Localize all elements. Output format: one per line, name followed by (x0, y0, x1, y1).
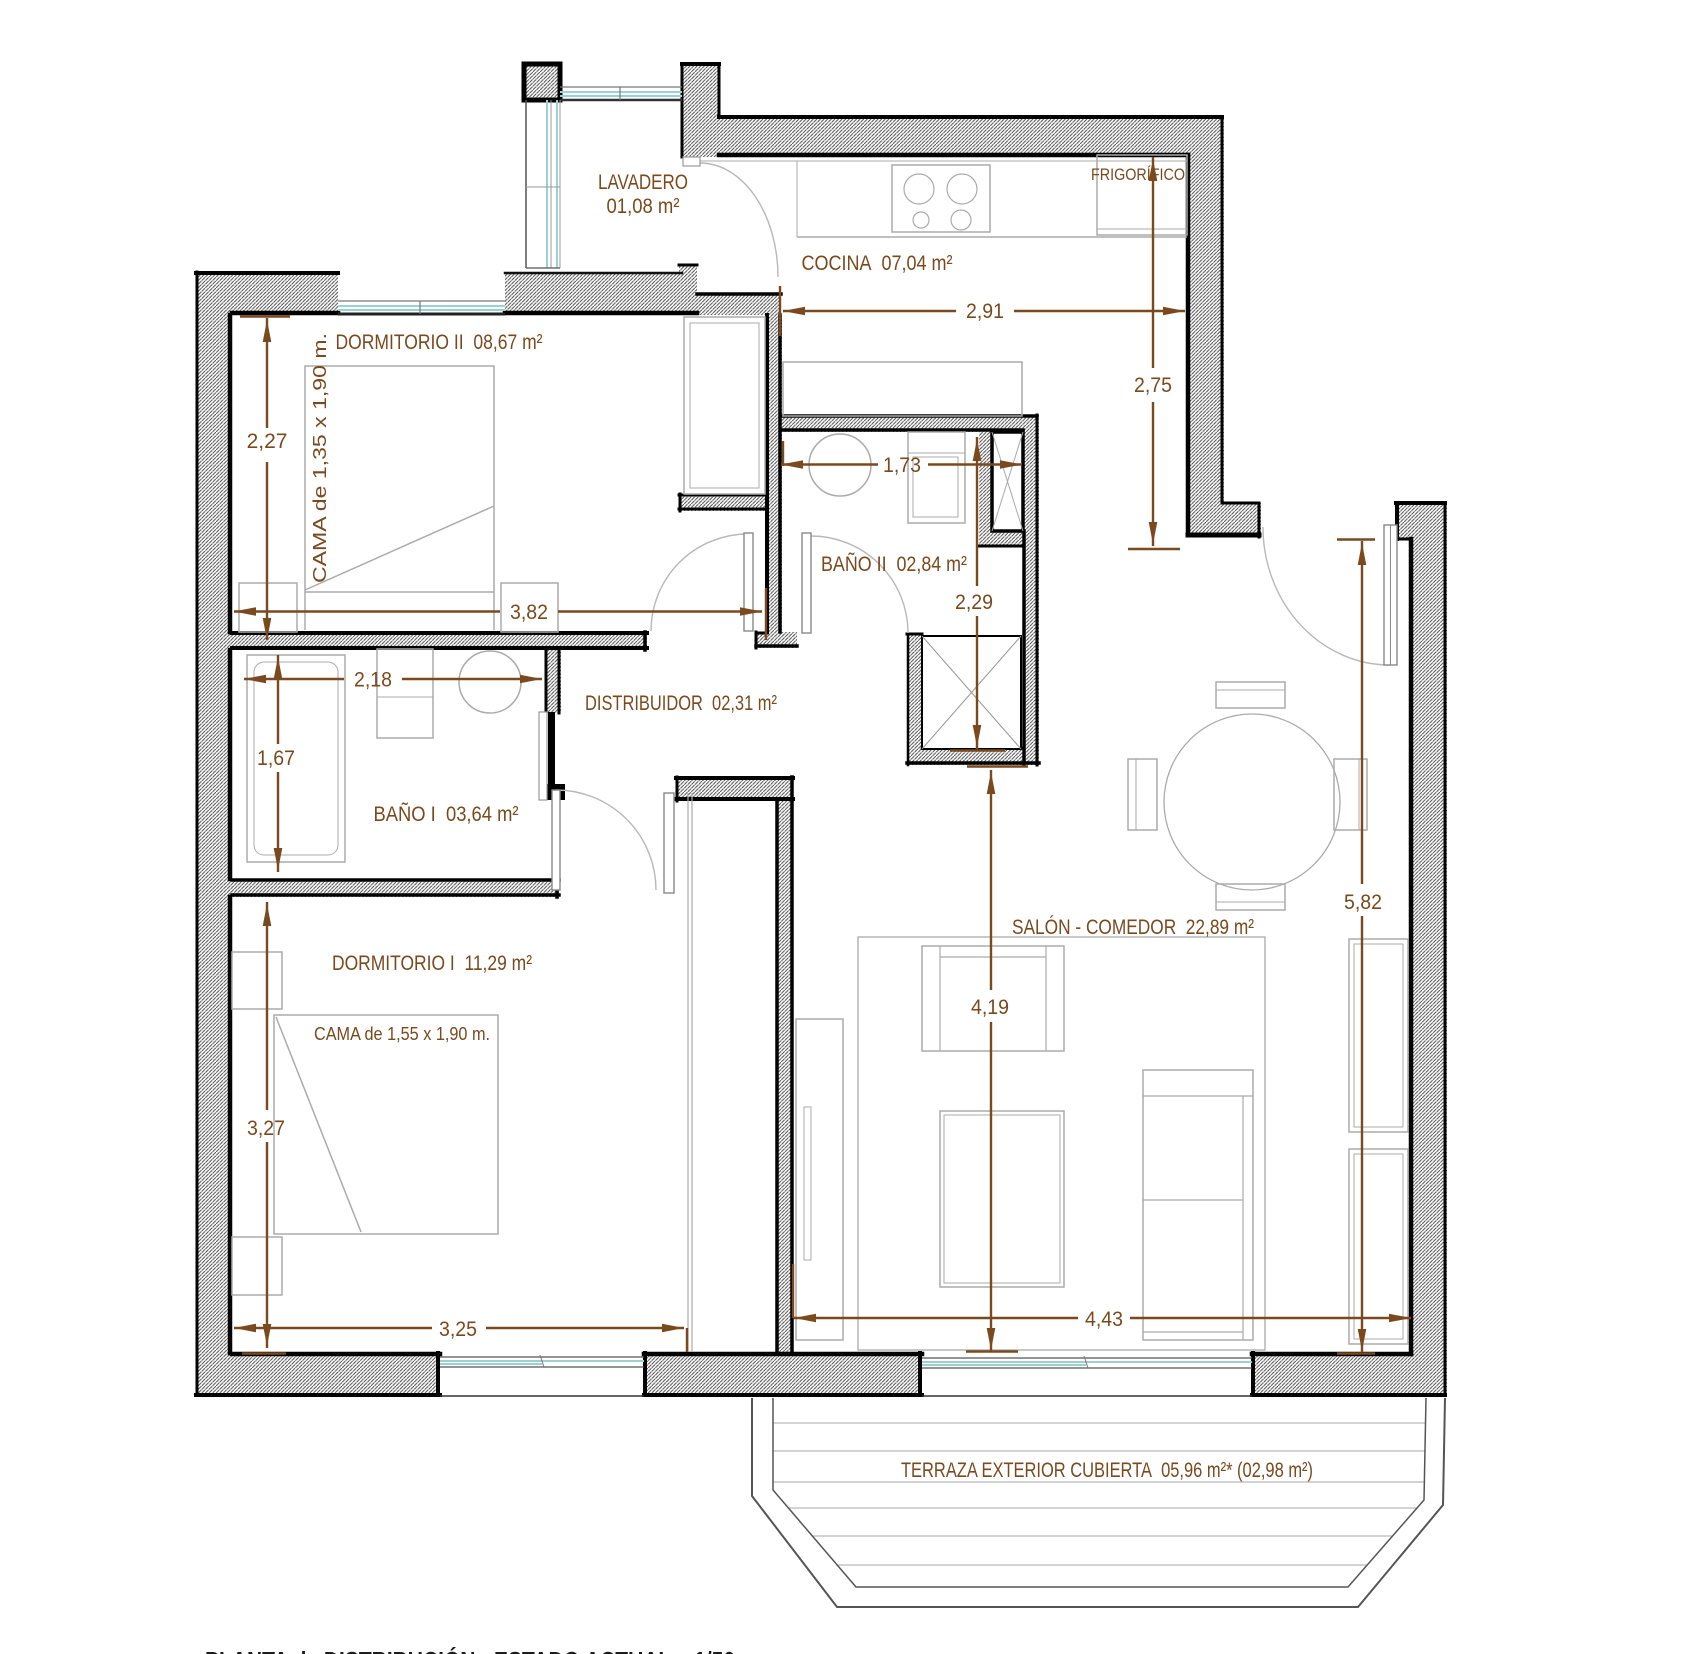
svg-text:1,73: 1,73 (883, 454, 921, 477)
svg-text:2,27: 2,27 (247, 430, 288, 453)
svg-text:DISTRIBUIDOR 02,31 m²: DISTRIBUIDOR 02,31 m² (585, 692, 777, 715)
svg-text:4,19: 4,19 (971, 996, 1009, 1019)
svg-text:3,27: 3,27 (247, 1117, 285, 1140)
svg-text:3,82: 3,82 (510, 601, 548, 624)
svg-text:4,43: 4,43 (1085, 1308, 1123, 1331)
svg-text:TERRAZA EXTERIOR CUBIERTA 05,: TERRAZA EXTERIOR CUBIERTA 05,96 m²* (02,… (901, 1459, 1313, 1482)
svg-text:1,67: 1,67 (257, 747, 295, 770)
svg-text:CAMA de 1,55 x 1,90 m.: CAMA de 1,55 x 1,90 m. (314, 1024, 490, 1044)
svg-text:FRIGORÍFICO: FRIGORÍFICO (1091, 165, 1185, 184)
svg-text:COCINA 07,04 m²: COCINA 07,04 m² (802, 252, 953, 275)
svg-text:LAVADERO: LAVADERO (598, 171, 688, 194)
svg-text:CAMA de 1,35 x 1,90 m.: CAMA de 1,35 x 1,90 m. (310, 333, 330, 583)
svg-text:BAÑO I 03,64 m²: BAÑO I 03,64 m² (374, 802, 519, 826)
svg-text:2,29: 2,29 (955, 591, 993, 614)
svg-text:SALÓN - COMEDOR 22,89 m²: SALÓN - COMEDOR 22,89 m² (1012, 916, 1254, 939)
svg-text:3,25: 3,25 (439, 1318, 477, 1341)
svg-text:PLANTA de DISTRIBUCIÓN - ESTAD: PLANTA de DISTRIBUCIÓN - ESTADO ACTUAL e… (205, 1646, 735, 1654)
svg-text:2,18: 2,18 (354, 669, 392, 692)
svg-text:2,75: 2,75 (1134, 374, 1172, 397)
svg-text:BAÑO II 02,84 m²: BAÑO II 02,84 m² (821, 552, 967, 576)
svg-text:5,82: 5,82 (1344, 891, 1382, 914)
svg-text:DORMITORIO I 11,29 m²: DORMITORIO I 11,29 m² (332, 952, 532, 975)
svg-text:2,91: 2,91 (966, 300, 1004, 323)
svg-text:DORMITORIO II 08,67 m²: DORMITORIO II 08,67 m² (336, 331, 543, 354)
svg-text:01,08 m²: 01,08 m² (607, 195, 680, 218)
